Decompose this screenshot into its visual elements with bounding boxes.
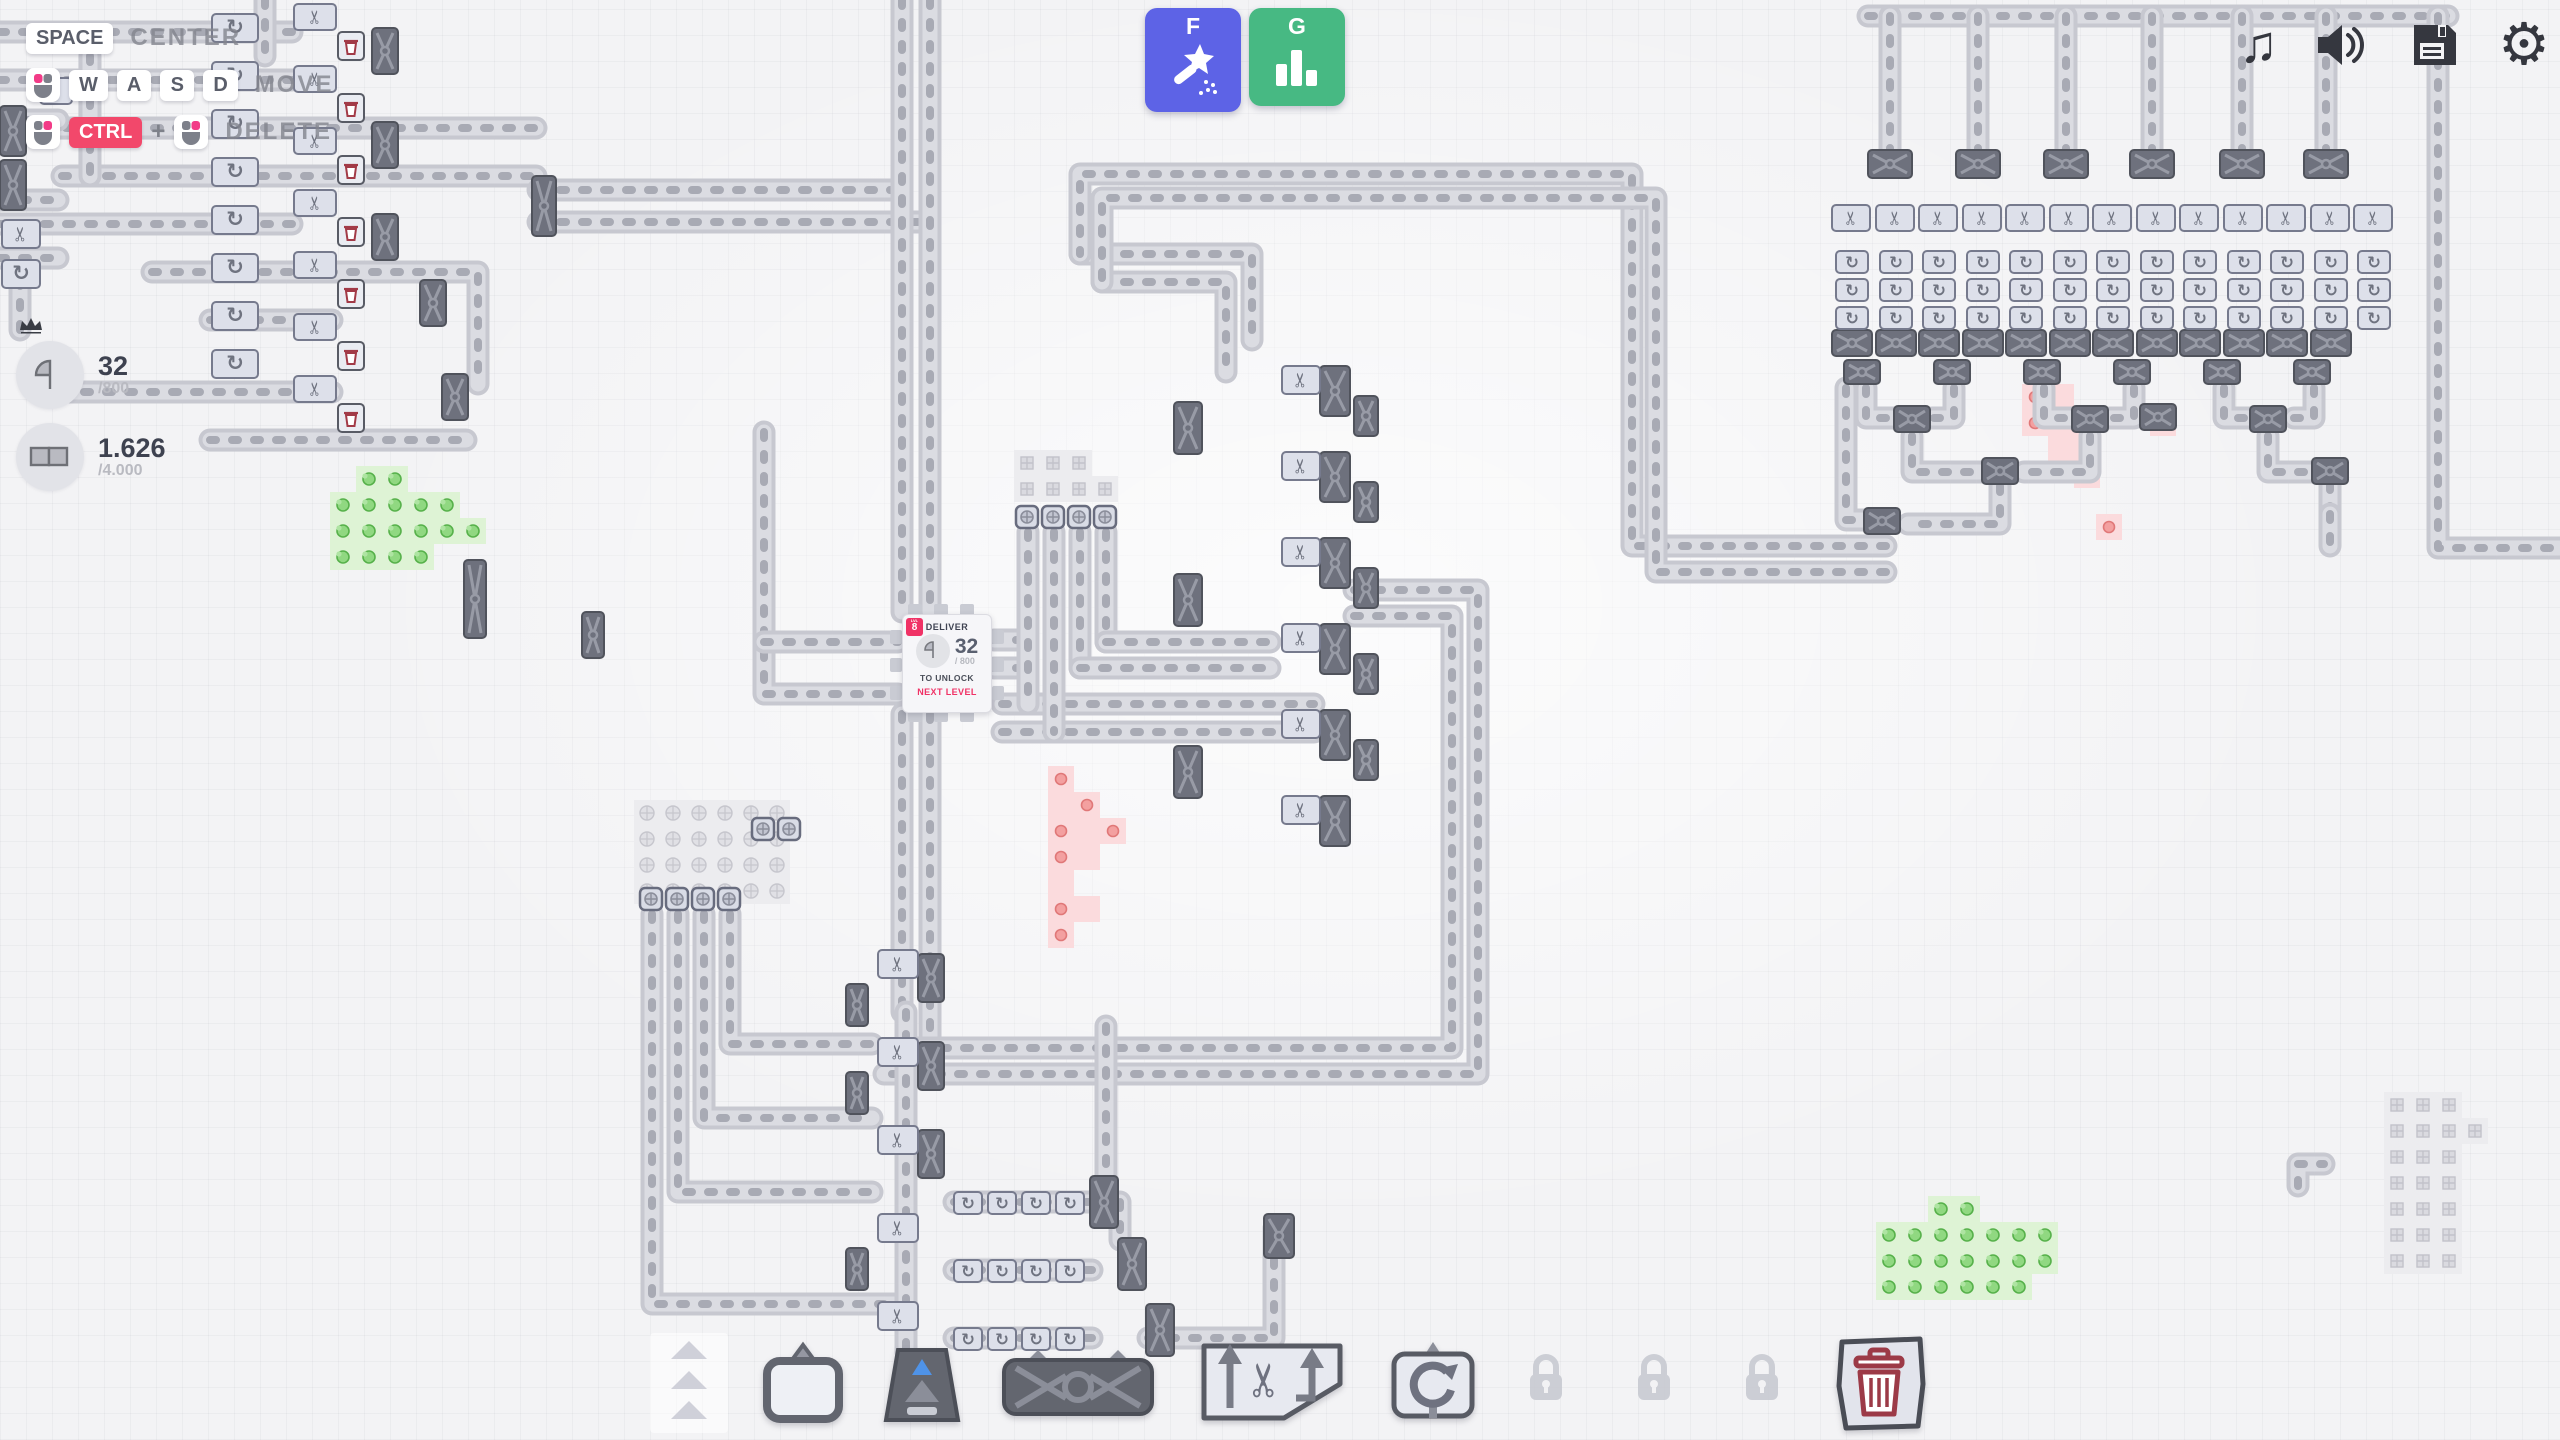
lock-icon xyxy=(1526,1352,1566,1402)
extractor-icon xyxy=(760,1340,846,1424)
speaker-icon[interactable] xyxy=(2316,21,2372,69)
hint-delete: CTRL + DELETE xyxy=(26,116,333,148)
hint-delete-action: DELETE xyxy=(225,118,332,146)
ctrl-key: CTRL xyxy=(69,117,142,148)
svg-text:↻: ↻ xyxy=(1845,309,1859,328)
upgrade-goal-value: 1.626 xyxy=(98,434,166,462)
svg-text:↻: ↻ xyxy=(226,255,244,279)
hint-move-action: MOVE xyxy=(255,71,334,99)
hub-goal-value: 32 xyxy=(955,636,978,657)
svg-text:↻: ↻ xyxy=(226,303,244,327)
svg-text:↻: ↻ xyxy=(2324,281,2338,300)
magic-wand-icon xyxy=(1166,40,1220,98)
svg-text:↻: ↻ xyxy=(2019,281,2033,300)
svg-text:↻: ↻ xyxy=(2063,281,2077,300)
svg-text:↻: ↻ xyxy=(226,207,244,231)
trash-icon xyxy=(1832,1334,1928,1432)
music-note-icon[interactable]: ♫ xyxy=(2239,19,2278,71)
svg-text:✂: ✂ xyxy=(1289,716,1312,732)
svg-text:✂: ✂ xyxy=(2189,210,2210,225)
svg-text:↻: ↻ xyxy=(1029,1194,1043,1213)
svg-text:✂: ✂ xyxy=(9,226,32,242)
svg-text:✂: ✂ xyxy=(1972,210,1993,225)
svg-text:✂: ✂ xyxy=(2102,210,2123,225)
toolbar-belt-button[interactable] xyxy=(650,1333,728,1433)
svg-text:↻: ↻ xyxy=(2150,309,2164,328)
svg-text:↻: ↻ xyxy=(2324,309,2338,328)
svg-text:↻: ↻ xyxy=(2367,281,2381,300)
svg-text:↻: ↻ xyxy=(2019,253,2033,272)
svg-text:✂: ✂ xyxy=(2363,210,2384,225)
svg-text:↻: ↻ xyxy=(1889,253,1903,272)
hint-center-action: CENTER xyxy=(130,24,241,52)
double-rectangle-shape-icon xyxy=(27,437,73,477)
svg-text:↻: ↻ xyxy=(1845,253,1859,272)
svg-text:✂: ✂ xyxy=(1237,1361,1291,1400)
hub-building[interactable]: LVL 8 DELIVER 32 / 800 TO UNLOCK NEXT LE… xyxy=(902,614,992,713)
blueprint-wand-button[interactable]: F xyxy=(1145,8,1241,112)
svg-text:↻: ↻ xyxy=(1845,281,1859,300)
svg-text:↻: ↻ xyxy=(2280,253,2294,272)
svg-text:↻: ↻ xyxy=(2193,309,2207,328)
svg-text:↻: ↻ xyxy=(1029,1330,1043,1349)
svg-text:↻: ↻ xyxy=(2106,309,2120,328)
w-key: W xyxy=(69,70,108,101)
svg-text:✂: ✂ xyxy=(1289,372,1312,388)
upgrade-goal-target: /4.000 xyxy=(98,463,166,480)
svg-text:↻: ↻ xyxy=(1932,309,1946,328)
bar-chart-icon xyxy=(1270,40,1324,92)
save-icon[interactable] xyxy=(2410,21,2460,69)
svg-text:↻: ↻ xyxy=(2367,253,2381,272)
a-key: A xyxy=(117,70,151,101)
svg-text:↻: ↻ xyxy=(1889,281,1903,300)
svg-text:↻: ↻ xyxy=(2280,309,2294,328)
svg-text:✂: ✂ xyxy=(886,1220,909,1236)
mouse-left-button-icon xyxy=(26,68,60,102)
svg-text:↻: ↻ xyxy=(1976,281,1990,300)
svg-text:↻: ↻ xyxy=(2150,253,2164,272)
quarter-circle-shape-icon xyxy=(922,640,944,662)
keybinding-hints: SPACE CENTER W A S D MOVE xyxy=(26,22,333,163)
hotkey-label: F xyxy=(1145,8,1241,40)
svg-text:↻: ↻ xyxy=(12,261,30,285)
svg-text:↻: ↻ xyxy=(1932,281,1946,300)
mouse-right-button-icon xyxy=(174,115,208,149)
svg-text:↻: ↻ xyxy=(2237,309,2251,328)
svg-text:↻: ↻ xyxy=(995,1330,1009,1349)
toolbar-balancer-button[interactable] xyxy=(1002,1350,1154,1427)
svg-text:↻: ↻ xyxy=(1932,253,1946,272)
svg-text:↻: ↻ xyxy=(2193,281,2207,300)
rotator-icon xyxy=(1388,1340,1478,1424)
svg-text:↻: ↻ xyxy=(995,1262,1009,1281)
svg-text:↻: ↻ xyxy=(2280,281,2294,300)
toolbar-locked-slot xyxy=(1742,1352,1782,1407)
svg-text:✂: ✂ xyxy=(886,1132,909,1148)
lock-icon xyxy=(1634,1352,1674,1402)
svg-text:✂: ✂ xyxy=(1289,544,1312,560)
svg-text:✂: ✂ xyxy=(886,1044,909,1060)
svg-text:✂: ✂ xyxy=(886,1308,909,1324)
svg-text:✂: ✂ xyxy=(2146,210,2167,225)
settings-gear-icon[interactable]: ⚙ xyxy=(2498,16,2550,74)
toolbar-cutter-button[interactable]: ✂ xyxy=(1196,1336,1348,1429)
hub-level-badge: LVL 8 xyxy=(906,618,923,636)
cutter-icon: ✂ xyxy=(1196,1336,1348,1424)
svg-text:↻: ↻ xyxy=(2063,253,2077,272)
svg-text:✂: ✂ xyxy=(886,956,909,972)
statistics-button[interactable]: G xyxy=(1249,8,1345,106)
svg-text:↻: ↻ xyxy=(2063,309,2077,328)
upgrade-goal[interactable]: 1.626 /4.000 xyxy=(16,423,166,491)
svg-text:✂: ✂ xyxy=(305,319,326,334)
plus-sign: + xyxy=(151,118,165,146)
lock-icon xyxy=(1742,1352,1782,1402)
svg-text:✂: ✂ xyxy=(305,381,326,396)
svg-text:✂: ✂ xyxy=(1928,210,1949,225)
toolbar-trash-button[interactable] xyxy=(1832,1334,1928,1437)
hint-center: SPACE CENTER xyxy=(26,22,333,54)
factory-map[interactable]: ↻↻↻↻↻↻↻↻✂✂✂✂✂✂✂✂↻✂✂✂✂✂✂✂✂✂✂✂✂✂✂✂✂✂✂✂↻↻↻↻… xyxy=(0,0,2560,1440)
svg-text:↻: ↻ xyxy=(1976,253,1990,272)
toolbar-tunnel-button[interactable] xyxy=(876,1344,968,1429)
svg-text:✂: ✂ xyxy=(2059,210,2080,225)
svg-text:✂: ✂ xyxy=(1289,802,1312,818)
belt-network xyxy=(0,0,2560,1352)
svg-text:↻: ↻ xyxy=(2193,253,2207,272)
svg-text:↻: ↻ xyxy=(2324,253,2338,272)
svg-text:✂: ✂ xyxy=(1289,630,1312,646)
svg-text:↻: ↻ xyxy=(2106,253,2120,272)
svg-text:✂: ✂ xyxy=(305,257,326,272)
belt-icon xyxy=(663,1337,715,1429)
svg-text:↻: ↻ xyxy=(961,1262,975,1281)
svg-text:✂: ✂ xyxy=(2276,210,2297,225)
s-key: S xyxy=(160,70,194,101)
mouse-right-button-icon xyxy=(26,115,60,149)
d-key: D xyxy=(203,70,237,101)
svg-text:↻: ↻ xyxy=(2237,253,2251,272)
hub-goal-target: / 800 xyxy=(955,657,978,666)
svg-text:✂: ✂ xyxy=(2015,210,2036,225)
hub-level-number: 8 xyxy=(906,623,923,633)
pinned-goals: 32 /800 1.626 /4.000 xyxy=(16,316,166,505)
svg-text:✂: ✂ xyxy=(2233,210,2254,225)
level-goal[interactable]: 32 /800 xyxy=(16,341,166,409)
hint-move: W A S D MOVE xyxy=(26,69,333,101)
svg-text:↻: ↻ xyxy=(2367,309,2381,328)
hotkey-label: G xyxy=(1249,8,1345,40)
svg-text:↻: ↻ xyxy=(1029,1262,1043,1281)
svg-text:↻: ↻ xyxy=(2237,281,2251,300)
level-goal-value: 32 xyxy=(98,352,129,380)
svg-text:↻: ↻ xyxy=(1063,1262,1077,1281)
svg-text:↻: ↻ xyxy=(2019,309,2033,328)
hub-unlock-line2: NEXT LEVEL xyxy=(903,687,991,697)
quarter-circle-shape-icon xyxy=(30,355,70,395)
svg-text:↻: ↻ xyxy=(1063,1330,1077,1349)
svg-text:↻: ↻ xyxy=(226,351,244,375)
tunnel-icon xyxy=(876,1344,968,1424)
svg-text:✂: ✂ xyxy=(2320,210,2341,225)
svg-text:✂: ✂ xyxy=(1841,210,1862,225)
system-menu: ♫ ⚙ xyxy=(2190,10,2560,80)
balancer-icon xyxy=(1002,1350,1154,1422)
svg-text:✂: ✂ xyxy=(305,195,326,210)
svg-text:↻: ↻ xyxy=(1976,309,1990,328)
level-goal-target: /800 xyxy=(98,381,129,398)
hub-unlock-line1: TO UNLOCK xyxy=(903,673,991,683)
svg-text:↻: ↻ xyxy=(1063,1194,1077,1213)
svg-text:✂: ✂ xyxy=(1289,458,1312,474)
crown-icon xyxy=(18,316,44,334)
toolbar-locked-slot xyxy=(1526,1352,1566,1407)
hub-goal-shape xyxy=(916,634,950,668)
svg-text:↻: ↻ xyxy=(1889,309,1903,328)
svg-text:↻: ↻ xyxy=(2150,281,2164,300)
svg-text:↻: ↻ xyxy=(995,1194,1009,1213)
svg-text:✂: ✂ xyxy=(1885,210,1906,225)
toolbar-locked-slot xyxy=(1634,1352,1674,1407)
space-key: SPACE xyxy=(26,23,113,54)
svg-text:↻: ↻ xyxy=(961,1194,975,1213)
toolbar-rotator-button[interactable] xyxy=(1388,1340,1478,1429)
svg-text:↻: ↻ xyxy=(2106,281,2120,300)
game-viewport[interactable]: ↻↻↻↻↻↻↻↻✂✂✂✂✂✂✂✂↻✂✂✂✂✂✂✂✂✂✂✂✂✂✂✂✂✂✂✂↻↻↻↻… xyxy=(0,0,2560,1440)
toolbar-extractor-button[interactable] xyxy=(760,1340,846,1429)
